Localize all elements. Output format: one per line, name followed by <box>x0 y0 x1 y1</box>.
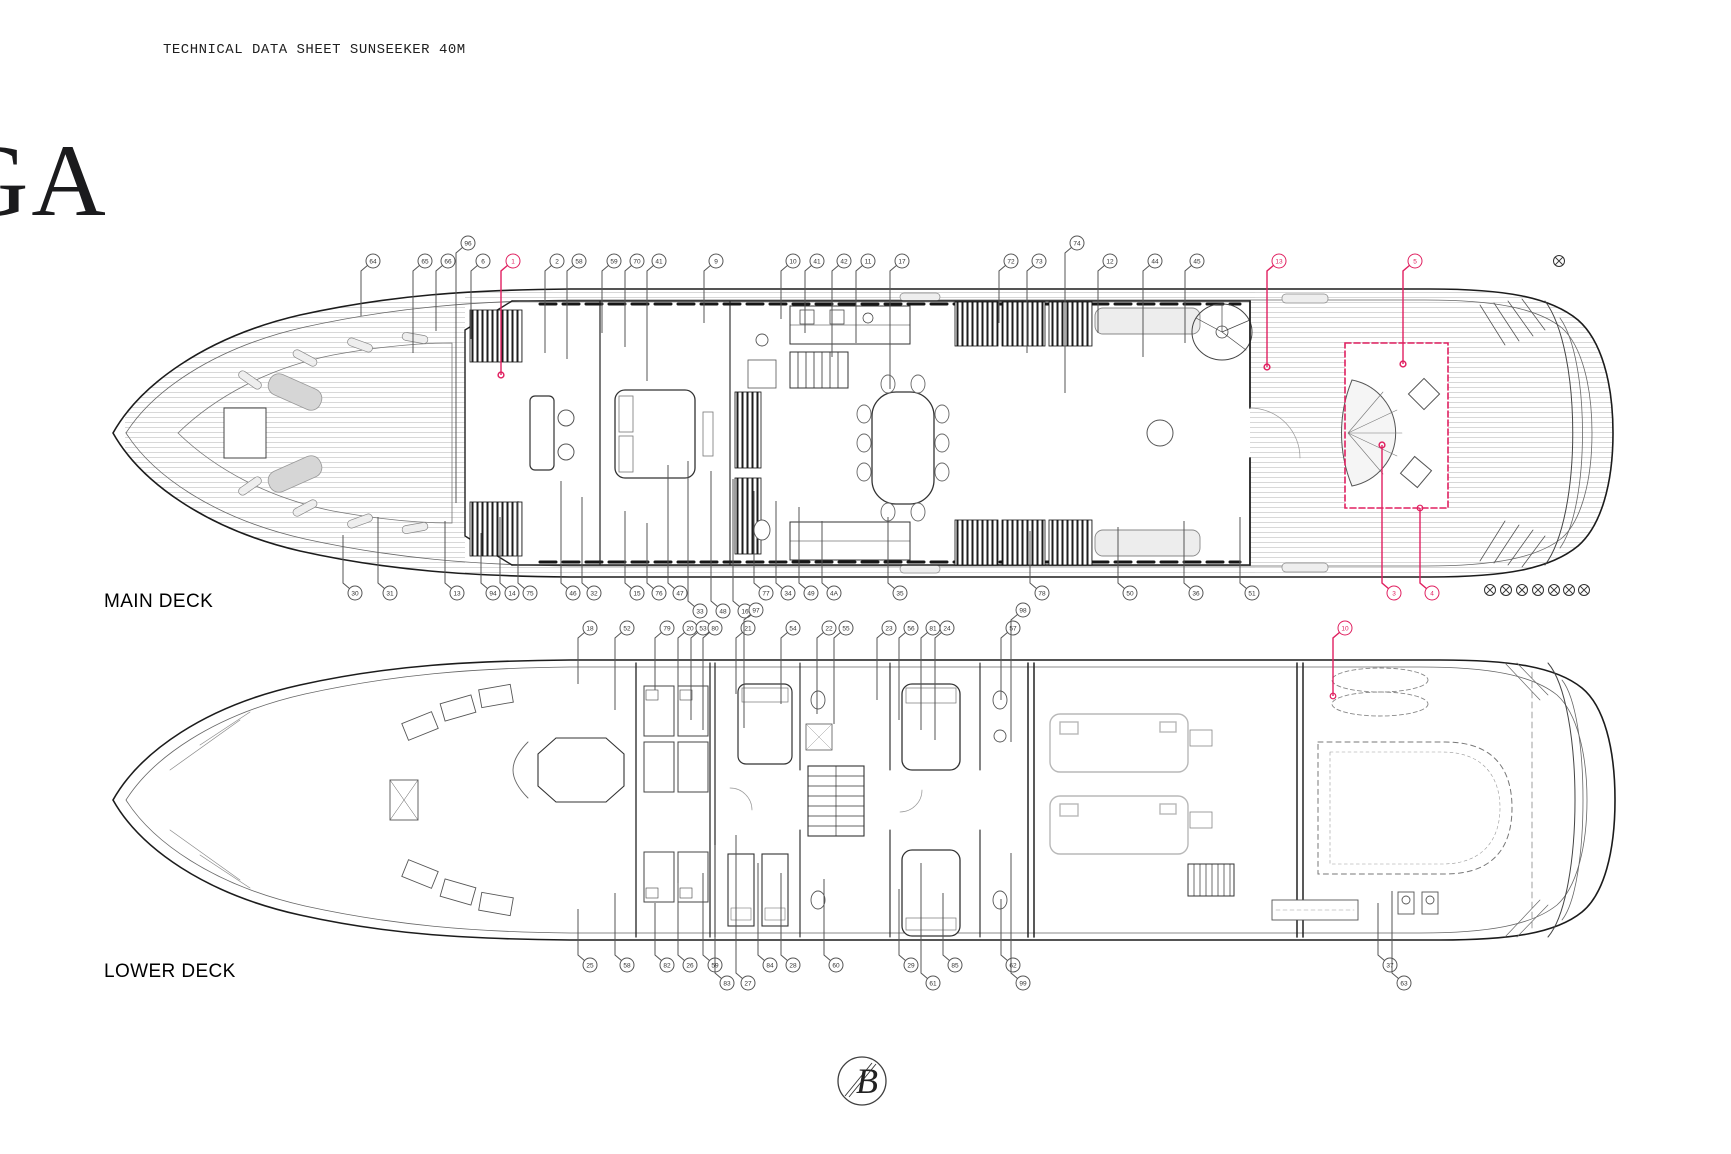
callout-82: 82 <box>655 903 674 972</box>
watertight-bulkhead <box>710 663 715 937</box>
svg-text:41: 41 <box>655 258 663 265</box>
svg-text:6: 6 <box>481 258 485 265</box>
svg-text:4A: 4A <box>830 590 839 597</box>
coffee-table <box>1147 420 1173 446</box>
svg-text:44: 44 <box>1151 258 1159 265</box>
svg-text:77: 77 <box>762 590 770 597</box>
svg-text:76: 76 <box>655 590 663 597</box>
svg-text:31: 31 <box>386 590 394 597</box>
svg-text:78: 78 <box>1038 590 1046 597</box>
svg-text:2: 2 <box>555 258 559 265</box>
svg-text:97: 97 <box>752 607 760 614</box>
svg-text:84: 84 <box>766 962 774 969</box>
callout-41: 41 <box>647 254 666 381</box>
callout-15: 15 <box>625 511 644 600</box>
svg-text:81: 81 <box>929 625 937 632</box>
svg-text:50: 50 <box>1126 590 1134 597</box>
pillow <box>906 688 956 703</box>
spiral-staircase <box>1192 304 1252 360</box>
svg-text:96: 96 <box>464 240 472 247</box>
svg-text:53: 53 <box>699 625 707 632</box>
svg-text:26: 26 <box>686 962 694 969</box>
svg-text:10: 10 <box>789 258 797 265</box>
crossed-circle-marker <box>1501 585 1512 596</box>
svg-text:20: 20 <box>686 625 694 632</box>
garage-bulkhead <box>1297 663 1303 937</box>
shower <box>748 360 776 388</box>
callout-58: 58 <box>567 254 586 359</box>
svg-text:13: 13 <box>1275 258 1283 265</box>
callout-18: 18 <box>578 621 597 684</box>
toilet <box>993 691 1007 709</box>
sink <box>756 334 768 346</box>
svg-text:32: 32 <box>590 590 598 597</box>
salon-sofa <box>1095 308 1200 334</box>
winch <box>1398 892 1438 914</box>
helm-seat <box>558 444 574 460</box>
pantry-cabinet <box>470 502 522 556</box>
transom-line-lower <box>1548 663 1575 937</box>
lower-deck-plan <box>113 660 1615 940</box>
svg-text:5: 5 <box>1413 258 1417 265</box>
gearbox <box>1190 812 1212 828</box>
jetski-outline <box>1332 668 1428 692</box>
helm-console <box>530 396 554 470</box>
svg-text:80: 80 <box>711 625 719 632</box>
svg-text:4: 4 <box>1430 590 1434 597</box>
svg-text:74: 74 <box>1073 240 1081 247</box>
svg-text:23: 23 <box>885 625 893 632</box>
svg-text:82: 82 <box>663 962 671 969</box>
svg-text:30: 30 <box>351 590 359 597</box>
svg-text:47: 47 <box>676 590 684 597</box>
callout-47: 47 <box>668 465 687 600</box>
svg-text:75: 75 <box>526 590 534 597</box>
callout-46: 46 <box>561 481 580 600</box>
pillow <box>906 918 956 930</box>
crew-lockers <box>390 684 513 915</box>
svg-text:58: 58 <box>575 258 583 265</box>
ga-drawing: 6465669661258597041910414211177273741244… <box>0 0 1731 1154</box>
svg-text:29: 29 <box>907 962 915 969</box>
main-deck-plan <box>113 289 1615 577</box>
crossed-circle-marker <box>1533 585 1544 596</box>
svg-text:48: 48 <box>719 608 727 615</box>
brand-logo: B <box>838 1057 886 1105</box>
svg-text:63: 63 <box>1400 980 1408 987</box>
svg-text:25: 25 <box>586 962 594 969</box>
pantry-cabinet <box>470 310 522 362</box>
svg-text:65: 65 <box>421 258 429 265</box>
svg-text:61: 61 <box>929 980 937 987</box>
bed-bench <box>703 412 713 456</box>
toilet <box>811 891 825 909</box>
svg-text:15: 15 <box>633 590 641 597</box>
sink <box>994 730 1006 742</box>
svg-text:12: 12 <box>1106 258 1114 265</box>
svg-text:34: 34 <box>784 590 792 597</box>
tender-outline <box>1318 742 1512 874</box>
svg-text:49: 49 <box>807 590 815 597</box>
pillow <box>765 908 785 920</box>
svg-text:24: 24 <box>943 625 951 632</box>
svg-text:1: 1 <box>511 258 515 265</box>
callout-21: 21 <box>736 621 755 694</box>
svg-text:85: 85 <box>951 962 959 969</box>
engine-room-bulkhead <box>1028 663 1034 937</box>
svg-text:59: 59 <box>610 258 618 265</box>
callout-37: 37 <box>1378 903 1397 972</box>
crossed-circle-marker <box>1554 256 1565 267</box>
svg-text:98: 98 <box>1019 607 1027 614</box>
svg-text:56: 56 <box>907 625 915 632</box>
svg-text:36: 36 <box>1192 590 1200 597</box>
staircase <box>790 352 848 388</box>
callout-79: 79 <box>655 621 674 690</box>
toilet <box>754 520 770 540</box>
crew-mess-table <box>538 738 624 802</box>
dining-table <box>857 375 949 521</box>
svg-text:55: 55 <box>842 625 850 632</box>
svg-text:54: 54 <box>789 625 797 632</box>
svg-text:22: 22 <box>825 625 833 632</box>
svg-text:21: 21 <box>744 625 752 632</box>
crew-bunks <box>644 686 708 902</box>
svg-text:13: 13 <box>453 590 461 597</box>
crossed-circle-marker <box>1564 585 1575 596</box>
callout-52: 52 <box>615 621 634 710</box>
foredeck-hatch <box>224 408 266 458</box>
svg-text:46: 46 <box>569 590 577 597</box>
callout-58: 58 <box>615 893 634 972</box>
svg-text:3: 3 <box>1392 590 1396 597</box>
bow-frames <box>170 712 250 888</box>
svg-text:42: 42 <box>840 258 848 265</box>
pillow <box>619 396 633 432</box>
svg-text:45: 45 <box>1193 258 1201 265</box>
svg-text:72: 72 <box>1007 258 1015 265</box>
svg-text:27: 27 <box>744 980 752 987</box>
svg-text:33: 33 <box>696 608 704 615</box>
pillow <box>731 908 751 920</box>
callout-33: 33 <box>688 461 707 618</box>
engine-room-stairs <box>1188 864 1234 896</box>
callout-55: 55 <box>834 621 853 724</box>
engine <box>1050 714 1188 854</box>
transom-line-lower <box>1562 680 1583 920</box>
callout-48: 48 <box>711 471 730 618</box>
svg-text:60: 60 <box>832 962 840 969</box>
crossed-circle-marker <box>1579 585 1590 596</box>
svg-text:11: 11 <box>865 258 872 265</box>
svg-text:73: 73 <box>1035 258 1043 265</box>
crew-mess-bench <box>513 742 528 798</box>
crossed-circle-marker <box>1549 585 1560 596</box>
toilet <box>811 691 825 709</box>
technical-data-sheet: TECHNICAL DATA SHEET SUNSEEKER 40M GA MA… <box>0 0 1731 1154</box>
wardrobe <box>735 392 761 468</box>
svg-text:83: 83 <box>723 980 731 987</box>
svg-text:99: 99 <box>1019 980 1027 987</box>
helm-seat <box>558 410 574 426</box>
salon-cabinets <box>955 302 1092 565</box>
toilet <box>993 891 1007 909</box>
pillow <box>619 436 633 472</box>
svg-text:64: 64 <box>369 258 377 265</box>
svg-text:18: 18 <box>586 625 594 632</box>
svg-text:79: 79 <box>663 625 671 632</box>
crossed-circle-marker <box>1517 585 1528 596</box>
svg-text:37: 37 <box>1386 962 1394 969</box>
svg-text:35: 35 <box>896 590 904 597</box>
jetski-outline <box>1332 692 1428 716</box>
callout-60: 60 <box>824 879 843 972</box>
logo-monogram: B <box>856 1061 878 1101</box>
svg-text:66: 66 <box>444 258 452 265</box>
svg-text:51: 51 <box>1248 590 1256 597</box>
svg-text:52: 52 <box>623 625 631 632</box>
crossed-circle-marker <box>1485 585 1496 596</box>
svg-text:16: 16 <box>741 608 749 615</box>
central-staircase <box>808 766 864 836</box>
svg-text:14: 14 <box>508 590 516 597</box>
svg-text:70: 70 <box>633 258 641 265</box>
svg-text:10: 10 <box>1341 625 1349 632</box>
svg-text:41: 41 <box>813 258 821 265</box>
svg-text:58: 58 <box>623 962 631 969</box>
svg-text:17: 17 <box>898 258 906 265</box>
gearbox <box>1190 730 1212 746</box>
svg-text:9: 9 <box>714 258 718 265</box>
wardrobe <box>735 478 761 554</box>
callout-32: 32 <box>582 497 601 600</box>
svg-text:28: 28 <box>789 962 797 969</box>
svg-text:94: 94 <box>489 590 497 597</box>
tender-inner <box>1330 752 1500 864</box>
